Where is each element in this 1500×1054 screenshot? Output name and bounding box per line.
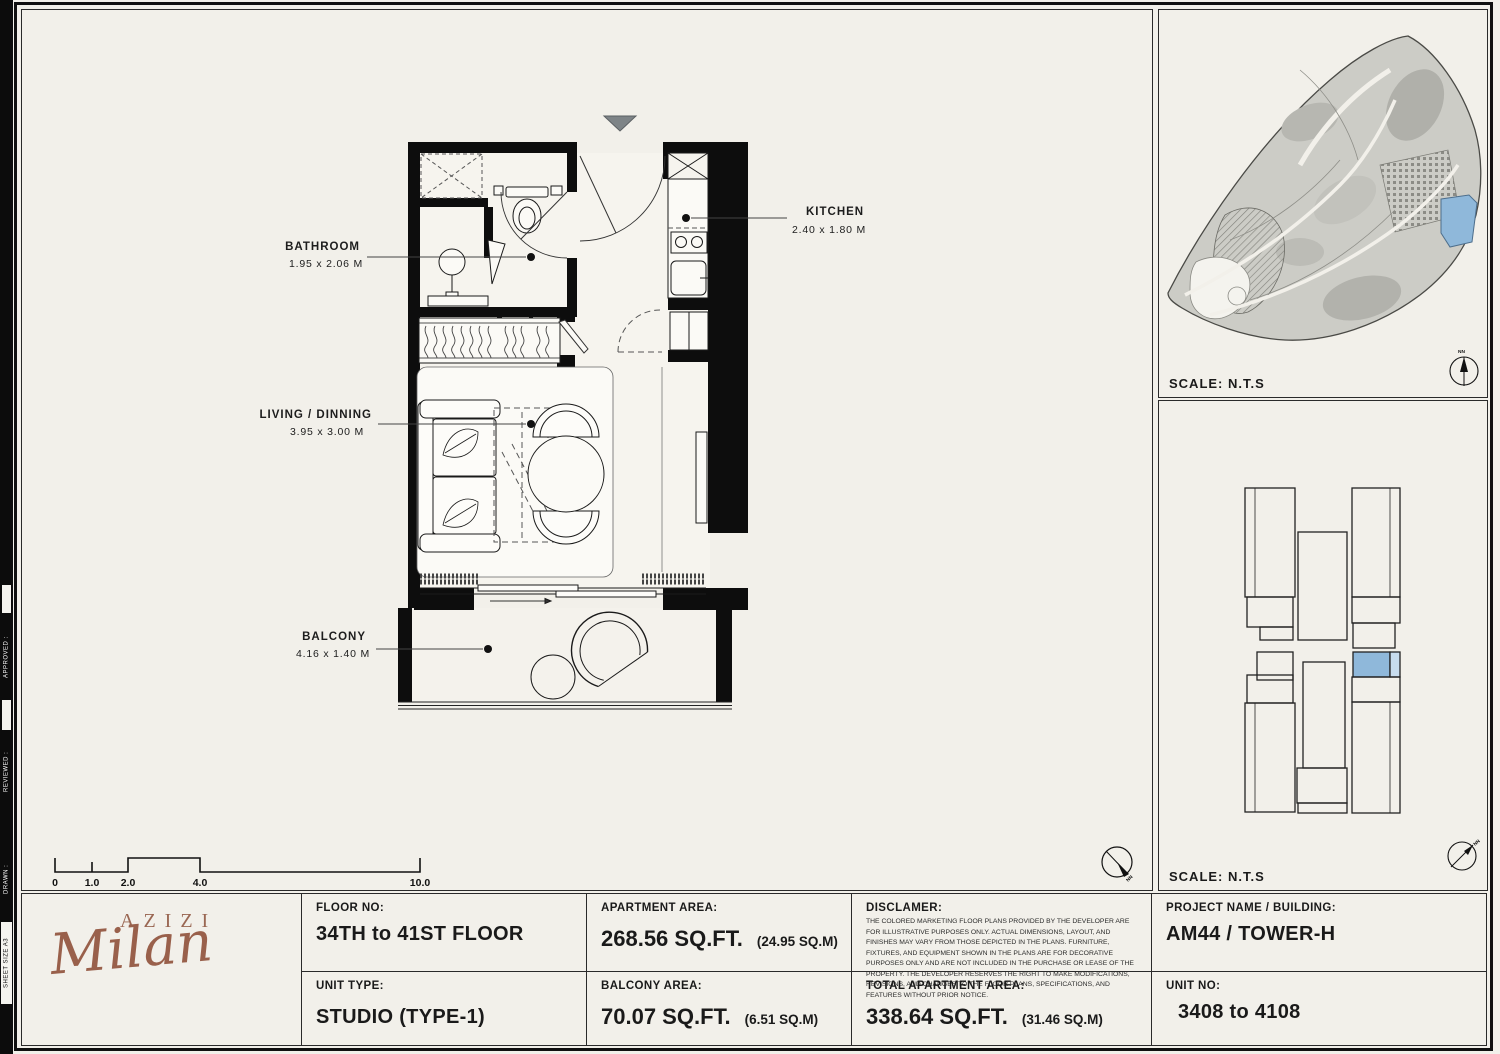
total-area-alt: (31.46 SQ.M): [1022, 1012, 1103, 1027]
bathroom-dims: 1.95 x 2.06 M: [289, 258, 363, 270]
drawn-label: DRAWN :: [1, 845, 12, 913]
living-label: LIVING / DINNING: [260, 409, 372, 421]
stove-icon: [671, 232, 707, 253]
area-column: APARTMENT AREA: 268.56 SQ.FT. (24.95 SQ.…: [586, 894, 851, 1045]
disclaimer-cell: DISCLAMER: The colored marketing floor p…: [852, 894, 1151, 971]
key-compass-label: NN: [1472, 838, 1482, 847]
project-column: PROJECT NAME / BUILDING: AM44 / TOWER-H …: [1151, 894, 1486, 1045]
site-map-svg: NN: [1158, 9, 1486, 396]
disclaimer-column: DISCLAMER: The colored marketing floor p…: [851, 894, 1151, 1045]
total-area-label: TOTAL APARTMENT AREA:: [866, 980, 1151, 992]
scale-bar: 0 1.0 2.0 4.0 10.0: [45, 845, 435, 890]
balcony-table: [531, 655, 575, 699]
unit-no-value: 3408 to 4108: [1178, 1001, 1486, 1024]
balcony-area-label: BALCONY AREA:: [601, 980, 851, 992]
tv-cabinet: [696, 432, 707, 523]
scale-tick-1: 1.0: [85, 877, 100, 889]
wall-notch: [716, 533, 742, 587]
scale-tick-4: 10.0: [410, 877, 431, 889]
apartment-area-alt: (24.95 SQ.M): [757, 934, 838, 949]
unit-type-cell: UNIT TYPE: STUDIO (TYPE-1): [302, 971, 586, 1044]
sheet-size-label: SHEET SIZE A3: [1, 922, 12, 1004]
approved-signature: [2, 585, 11, 613]
project-value: AM44 / TOWER-H: [1166, 923, 1486, 946]
scale-tick-3: 4.0: [193, 877, 208, 889]
key-plan-svg: NN: [1158, 400, 1486, 889]
balcony-label: BALCONY: [302, 631, 366, 643]
disclaimer-label: DISCLAMER:: [866, 902, 1151, 914]
kitchen-label: KITCHEN: [806, 206, 864, 218]
balcony-dims: 4.16 x 1.40 M: [296, 648, 370, 660]
mirror-icon: [439, 249, 465, 275]
title-block: AZIZI Milan FLOOR NO: 34TH to 41ST FLOOR…: [21, 893, 1487, 1046]
reviewed-signature: [2, 700, 11, 730]
scale-bar-line: [55, 858, 420, 872]
floor-unit-column: FLOOR NO: 34TH to 41ST FLOOR UNIT TYPE: …: [301, 894, 586, 1045]
unit-type-label: UNIT TYPE:: [316, 980, 586, 992]
reviewed-label: REVIEWED :: [1, 735, 12, 809]
floor-plan-svg: BATHROOM 1.95 x 2.06 M KITCHEN 2.40 x 1.…: [270, 95, 885, 735]
unit-type-value: STUDIO (TYPE-1): [316, 1006, 586, 1029]
apartment-area-cell: APARTMENT AREA: 268.56 SQ.FT. (24.95 SQ.…: [587, 894, 851, 971]
approved-label: APPROVED :: [1, 618, 12, 696]
key-compass: NN: [1448, 838, 1482, 870]
apartment-area-value: 268.56 SQ.FT.: [601, 926, 743, 952]
living-dims: 3.95 x 3.00 M: [290, 426, 364, 438]
wardrobe: [419, 318, 560, 363]
unit-no-cell: UNIT NO: 3408 to 4108: [1152, 971, 1486, 1044]
floor-no-cell: FLOOR NO: 34TH to 41ST FLOOR: [302, 894, 586, 971]
kitchen-dims: 2.40 x 1.80 M: [792, 224, 866, 236]
floorplan-sheet: APPROVED : REVIEWED : DRAWN : SHEET SIZE…: [0, 0, 1500, 1054]
site-highlight-plot: [1441, 195, 1477, 247]
balcony-area-cell: BALCONY AREA: 70.07 SQ.FT. (6.51 SQ.M): [587, 971, 851, 1044]
dining-table: [528, 436, 604, 512]
balcony-area-value: 70.07 SQ.FT.: [601, 1004, 731, 1030]
key-highlight-unit: [1353, 652, 1390, 677]
scale-tick-2: 2.0: [121, 877, 136, 889]
balcony-area-alt: (6.51 SQ.M): [745, 1012, 819, 1027]
total-area-value: 338.64 SQ.FT.: [866, 1004, 1008, 1030]
brand-logotype: Milan: [47, 909, 215, 988]
dining-set: [528, 404, 604, 544]
tower-floorplate: [1245, 488, 1400, 813]
sofa: [418, 400, 500, 552]
project-cell: PROJECT NAME / BUILDING: AM44 / TOWER-H: [1152, 894, 1486, 971]
floor-no-label: FLOOR NO:: [316, 902, 586, 914]
project-label: PROJECT NAME / BUILDING:: [1166, 902, 1486, 914]
brand-cell: AZIZI Milan: [22, 894, 301, 1045]
sheet-edge-strip: APPROVED : REVIEWED : DRAWN : SHEET SIZE…: [0, 0, 13, 1054]
bathroom-label: BATHROOM: [285, 241, 360, 253]
balcony-rail: [398, 702, 732, 709]
entry-arrow-icon: [604, 116, 636, 131]
plan-compass: NN: [1095, 840, 1145, 890]
kitchen-shaft: [668, 153, 708, 179]
masterplan-illustration: NN: [1168, 36, 1481, 386]
total-area-cell: TOTAL APARTMENT AREA: 338.64 SQ.FT. (31.…: [852, 971, 1151, 1044]
scale-tick-0: 0: [52, 877, 58, 889]
site-compass: NN: [1450, 349, 1478, 386]
kitchen-fixtures: [668, 179, 708, 350]
unit-no-label: UNIT NO:: [1166, 980, 1486, 992]
site-compass-label: NN: [1458, 349, 1465, 355]
apartment-area-label: APARTMENT AREA:: [601, 902, 851, 914]
floor-no-value: 34TH to 41ST FLOOR: [316, 923, 586, 946]
